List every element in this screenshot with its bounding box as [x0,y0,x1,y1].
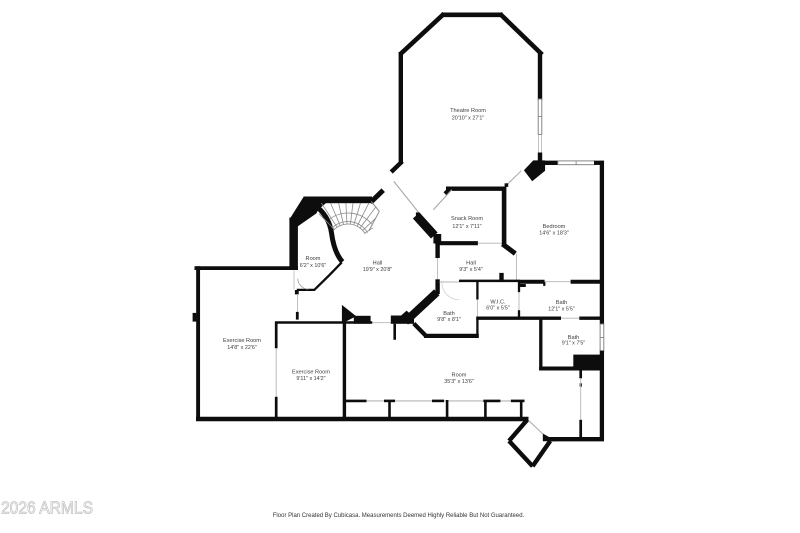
svg-text:19'9" x 20'8": 19'9" x 20'8" [363,267,393,273]
svg-text:Room: Room [452,372,467,378]
svg-text:14'8" x 22'6": 14'8" x 22'6" [227,345,257,351]
svg-text:Bedroom: Bedroom [543,224,566,230]
svg-text:12'1" x 7'11": 12'1" x 7'11" [452,224,481,230]
svg-text:20'10" x 27'1": 20'10" x 27'1" [452,116,485,122]
svg-text:Bath: Bath [443,311,455,317]
svg-text:Floor Plan Created By Cubicasa: Floor Plan Created By Cubicasa. Measurem… [273,513,525,519]
svg-text:Room: Room [306,256,321,262]
svg-text:6'0" x 5'5": 6'0" x 5'5" [486,306,510,312]
svg-text:9'8" x 8'1": 9'8" x 8'1" [437,317,461,323]
svg-text:Bath: Bath [556,300,568,306]
svg-text:W.I.C.: W.I.C. [490,300,506,306]
svg-text:12'1" x 5'5": 12'1" x 5'5" [548,306,575,312]
svg-text:Hall: Hall [466,260,476,266]
svg-text:9'3" x 5'4": 9'3" x 5'4" [459,267,483,273]
svg-text:9'11" x 14'2": 9'11" x 14'2" [296,376,325,382]
svg-text:6'2" x 10'6": 6'2" x 10'6" [300,263,327,269]
svg-text:9'1" x 7'5": 9'1" x 7'5" [562,341,586,347]
svg-text:35'3" x 13'6": 35'3" x 13'6" [444,379,474,385]
svg-text:Hall: Hall [373,260,383,266]
svg-text:Exercise Room: Exercise Room [292,370,330,376]
svg-text:2026 ARMLS: 2026 ARMLS [1,498,93,518]
svg-text:Snack Room: Snack Room [451,216,483,222]
svg-text:Exercise Room: Exercise Room [223,338,261,344]
svg-text:Theatre Room: Theatre Room [450,108,486,114]
svg-text:14'6" x 18'3": 14'6" x 18'3" [539,231,569,237]
